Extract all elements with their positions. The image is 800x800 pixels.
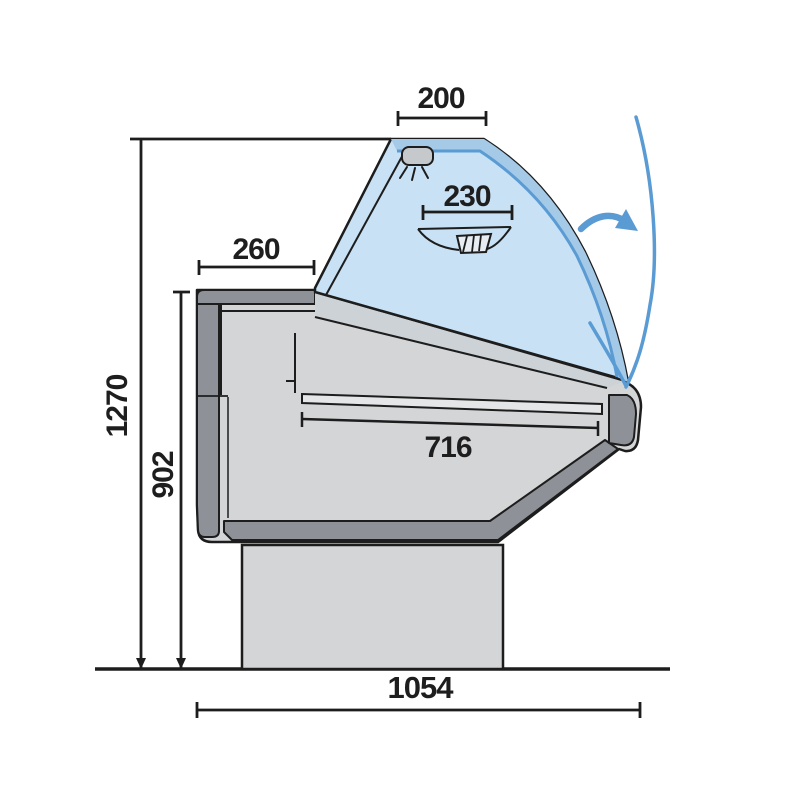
dimension-260-label: 260 [232, 233, 279, 266]
dimension-1054: 1054 [197, 670, 640, 718]
open-glass-arc-icon [626, 117, 654, 387]
cross-section-diagram: 716 200 [0, 0, 800, 800]
counter-top-panel [197, 290, 315, 304]
dimension-1270: 1270 [101, 139, 146, 669]
lamp-housing [402, 147, 433, 165]
front-nose-panel [609, 395, 636, 445]
dimension-902-label: 902 [147, 451, 180, 498]
dimension-260: 260 [199, 233, 314, 275]
dimension-716-label: 716 [424, 431, 471, 464]
dimension-200: 200 [398, 82, 486, 126]
rear-wall-panel [197, 304, 219, 537]
dimension-1270-label: 1270 [101, 374, 134, 437]
dimension-230-label: 230 [443, 180, 490, 213]
dimension-1054-label: 1054 [388, 670, 455, 705]
dimension-200-label: 200 [417, 82, 464, 115]
display-counter-drawing: 716 200 [0, 0, 800, 800]
pedestal-base [242, 545, 503, 669]
dimension-902: 902 [147, 292, 190, 669]
